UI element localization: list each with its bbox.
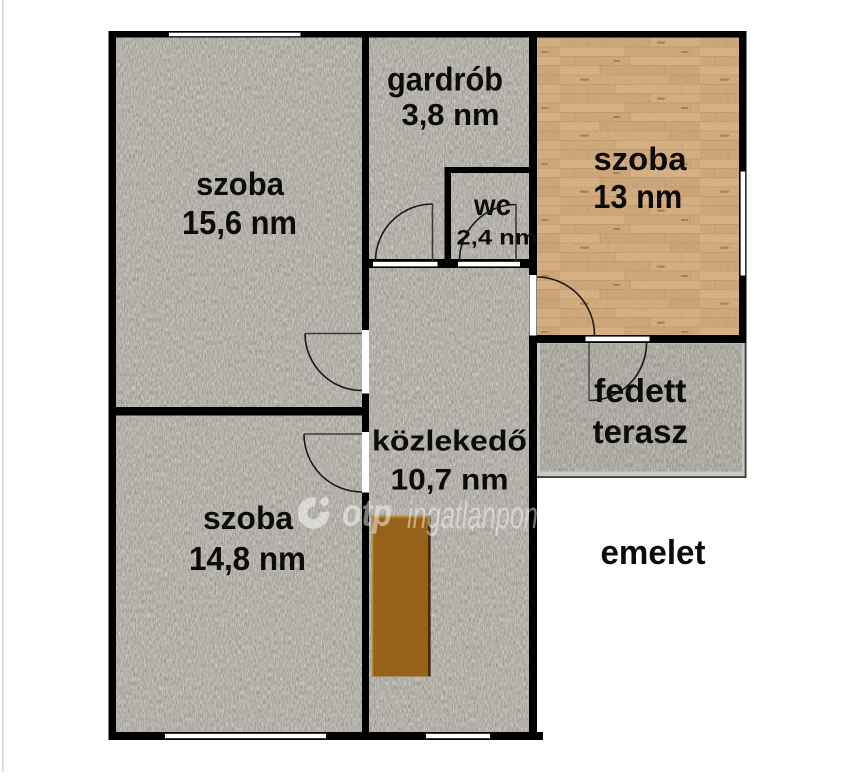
- svg-text:gardrób: gardrób: [387, 61, 503, 98]
- svg-text:ingatlanpont: ingatlanpont: [407, 495, 546, 537]
- svg-text:közlekedő: közlekedő: [372, 426, 527, 458]
- svg-text:fedett: fedett: [594, 372, 687, 409]
- svg-text:terasz: terasz: [593, 413, 688, 450]
- svg-text:10,7 nm: 10,7 nm: [391, 464, 509, 497]
- svg-text:szoba: szoba: [196, 166, 284, 202]
- svg-text:wc: wc: [473, 189, 511, 222]
- svg-text:14,8 nm: 14,8 nm: [189, 540, 306, 577]
- svg-text:szoba: szoba: [203, 500, 293, 536]
- svg-text:3,8 nm: 3,8 nm: [402, 97, 500, 132]
- svg-text:emelet: emelet: [601, 534, 706, 572]
- svg-text:otp: otp: [342, 493, 392, 535]
- svg-text:13 nm: 13 nm: [593, 178, 682, 215]
- svg-text:15,6 nm: 15,6 nm: [182, 204, 297, 241]
- svg-text:2,4 nm: 2,4 nm: [457, 227, 538, 250]
- svg-text:szoba: szoba: [594, 141, 687, 177]
